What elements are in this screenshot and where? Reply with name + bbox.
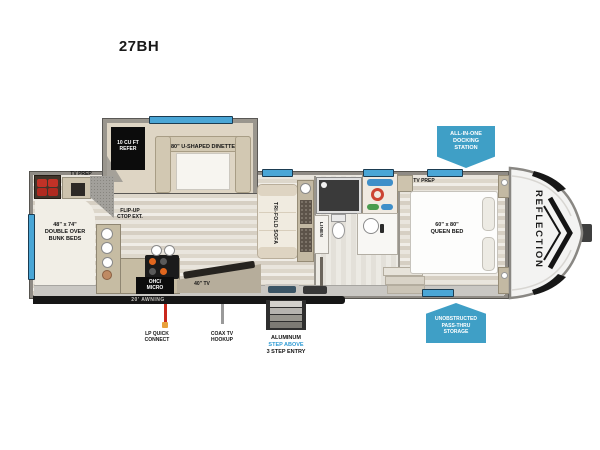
sofa-armrest [258, 185, 297, 196]
wardrobe-clothes-red [371, 188, 384, 201]
console-lamp [300, 183, 311, 194]
refrigerator: 10 CU FT REFER [111, 127, 145, 170]
dinette-window [149, 116, 233, 124]
cooktop [145, 255, 179, 279]
queen-bed-label: 60" x 80" QUEEN BED [418, 222, 476, 236]
wardrobe-clothes-blue [367, 179, 393, 186]
lp-quick-connect-label: LP QUICK CONNECT [134, 331, 180, 343]
front-cap: REFLECTION [508, 164, 596, 302]
kitchen-sink-bowl [101, 228, 113, 240]
burner [160, 258, 167, 265]
coax-hookup-line [221, 304, 224, 324]
ohc-micro-cabinet: OHC/ MICRO [136, 277, 174, 294]
pot [164, 245, 175, 256]
bathroom-door [320, 257, 323, 286]
console-cupholders [300, 200, 312, 224]
pillow [482, 237, 495, 271]
passthru-storage-badge: UNOBSTRUCTED PASS-THRU STORAGE [426, 303, 486, 343]
nightstand-lamp [501, 272, 508, 279]
bedroom-window-bottom [422, 289, 454, 297]
wardrobe [362, 173, 398, 214]
rear-tv-cabinet [62, 177, 91, 199]
bunk-beds-label: 48" x 74" DOUBLE OVER BUNK BEDS [36, 222, 94, 243]
decor-bowl [102, 270, 112, 280]
tv-prep-screen [71, 183, 85, 196]
toilet [332, 222, 345, 239]
storage-bin [48, 188, 58, 196]
coax-hookup-label: COAX TV HOOKUP [200, 331, 244, 343]
kitchen-sink-bowl [102, 257, 113, 268]
rear-storage-cabinet [34, 175, 61, 199]
step-tread [270, 315, 302, 321]
burner [160, 268, 167, 275]
burner [149, 258, 156, 265]
brand-logo: REFLECTION [533, 190, 544, 269]
storage-bin [37, 179, 47, 187]
kitchen-sink-bowl [101, 242, 113, 254]
flip-up-ctop-label: FLIP-UP CTOP EXT. [110, 208, 150, 220]
entry-grab-handle [303, 286, 327, 294]
linen-label: LINEN [319, 222, 324, 237]
entry-steps-label: ALUMINUM STEP ABOVE 3 STEP ENTRY [252, 335, 320, 356]
bath-vanity [357, 213, 398, 255]
tv-prep-rear-label: TV PREP [64, 171, 98, 177]
tv-40-label: 40" TV [188, 281, 216, 287]
model-title: 27BH [103, 38, 175, 55]
step-tread [270, 322, 302, 328]
wardrobe-clothes-blue [381, 204, 393, 210]
lp-connect-line [164, 304, 167, 324]
wardrobe-clothes-green [367, 204, 379, 210]
bath-faucet [380, 224, 384, 233]
bath-window [363, 169, 394, 177]
dinette-label: 80" U-SHAPED DINETTE [150, 144, 256, 151]
storage-bin [37, 188, 47, 196]
awning-label: 20' AWNING [118, 297, 178, 303]
rear-window [28, 214, 35, 280]
entry-door-mat [268, 286, 296, 293]
docking-station-badge: ALL-IN-ONE DOCKING STATION [437, 126, 495, 168]
floorplan-canvas: 27BH 10 CU FT REFER 80" U-SHAPED DINETTE… [0, 0, 600, 450]
linen-cabinet: LINEN [314, 215, 329, 254]
sofa-label: TRI-FOLD SOFA [272, 197, 278, 249]
bedroom-window-top [427, 169, 463, 177]
nightstand-lamp [501, 179, 508, 186]
storage-bin [48, 179, 58, 187]
step-tread [270, 308, 302, 314]
bedroom-step [385, 276, 425, 285]
shower-head [321, 182, 327, 188]
burner [149, 268, 156, 275]
shower [317, 178, 361, 213]
step-tread [270, 301, 302, 307]
living-window [262, 169, 293, 177]
dinette-table [176, 153, 230, 190]
lp-connect-tip [162, 322, 168, 328]
console-cupholders [300, 228, 312, 252]
tv-prep-bedroom-label: TV PREP [410, 178, 438, 184]
toilet-tank [331, 214, 346, 222]
pillow [482, 197, 495, 231]
bedroom-step [387, 285, 425, 294]
entry-steps [266, 300, 306, 330]
bath-sink [363, 218, 379, 234]
pot [151, 245, 162, 256]
